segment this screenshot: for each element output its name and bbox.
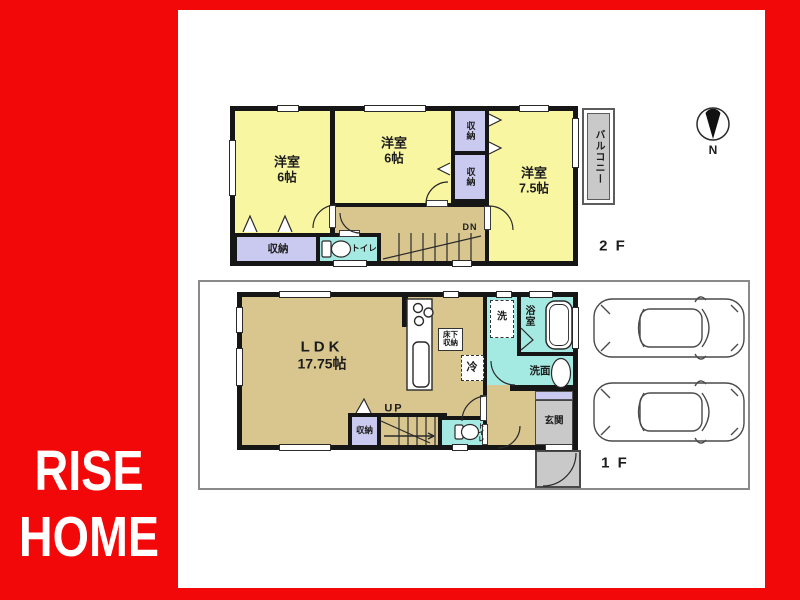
stairs-up-icon — [381, 417, 435, 445]
closet-label: 収納 — [466, 167, 475, 187]
car-icon — [594, 381, 744, 443]
room-size: 6帖 — [274, 170, 300, 184]
toilet-icon — [322, 241, 351, 257]
closet-label: 収納 — [356, 426, 373, 436]
room-size: 6帖 — [381, 151, 407, 165]
ldk-size: 17.75帖 — [297, 356, 346, 372]
toilet-label: トイレ — [351, 244, 377, 254]
compass-icon — [697, 108, 729, 140]
fridge-label: 冷 — [467, 362, 478, 375]
brand-line1: RISE — [16, 438, 162, 504]
brand-logo: RISE HOME — [16, 438, 162, 570]
kitchen-counter-icon — [407, 299, 433, 390]
room-name: 洋室 — [274, 155, 300, 170]
floor1-label: 1 F — [601, 454, 629, 471]
sink-icon — [552, 359, 571, 388]
room-name: 洋室 — [381, 136, 407, 151]
room-name: 洋室 — [519, 166, 549, 181]
bathtub-icon — [546, 301, 572, 349]
car-icon — [594, 297, 744, 359]
stairs-down-icon — [383, 233, 481, 261]
balcony-label: バルコニー — [593, 130, 603, 185]
brand-line2: HOME — [16, 504, 162, 570]
toilet-label: トイレ — [476, 422, 483, 442]
closet-label: 収納 — [268, 243, 289, 255]
floor2-label: 2 F — [599, 237, 627, 254]
stairs-label: DN — [463, 222, 478, 232]
closet-label: 収納 — [466, 121, 475, 141]
room-label: 洋室 7.5帖 — [519, 166, 549, 195]
flyer-canvas: { "brand": { "line1": "RISE", "line2": "… — [0, 0, 800, 600]
compass-north-label: N — [709, 144, 718, 158]
bath-label: 浴室 — [523, 305, 533, 327]
ldk-name: LDK — [297, 338, 346, 355]
stairs-label: UP — [384, 403, 403, 416]
washer-label: 洗 — [497, 311, 507, 323]
room-label: 洋室 6帖 — [381, 136, 407, 165]
room-label: 洋室 6帖 — [274, 155, 300, 184]
underfloor-storage-label: 床下収納 — [442, 331, 459, 348]
room-size: 7.5帖 — [519, 181, 549, 195]
ldk-label: LDK 17.75帖 — [297, 338, 346, 371]
vanity-label: 洗面 — [530, 365, 551, 377]
entrance-label: 玄関 — [544, 417, 563, 428]
